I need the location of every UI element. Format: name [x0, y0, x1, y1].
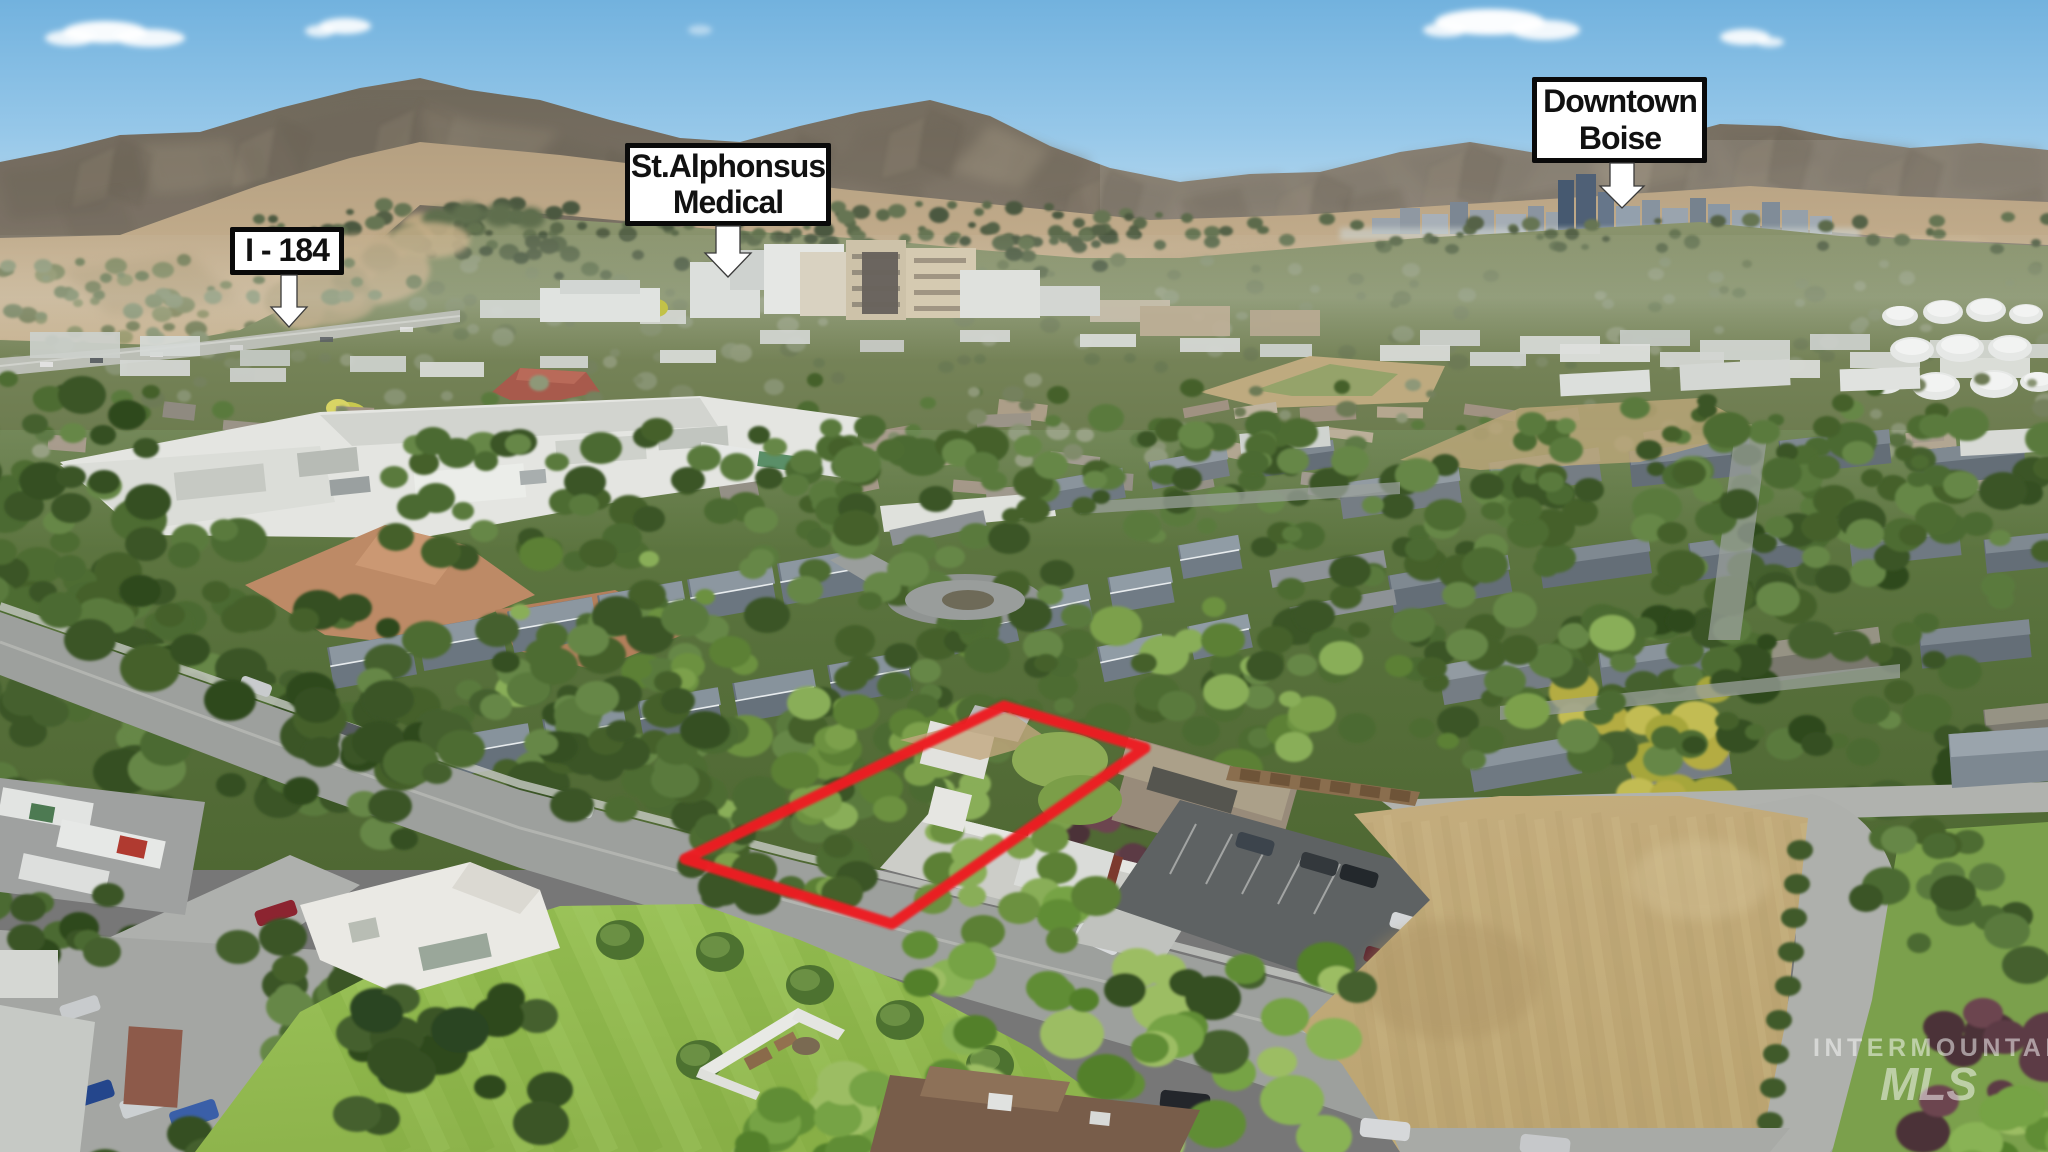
svg-text:MLS: MLS	[1880, 1058, 1977, 1110]
svg-text:St.Alphonsus: St.Alphonsus	[631, 148, 825, 184]
svg-text:Downtown: Downtown	[1543, 83, 1697, 119]
svg-text:I - 184: I - 184	[245, 232, 330, 268]
svg-text:Medical: Medical	[673, 184, 783, 220]
svg-text:Boise: Boise	[1579, 120, 1661, 156]
